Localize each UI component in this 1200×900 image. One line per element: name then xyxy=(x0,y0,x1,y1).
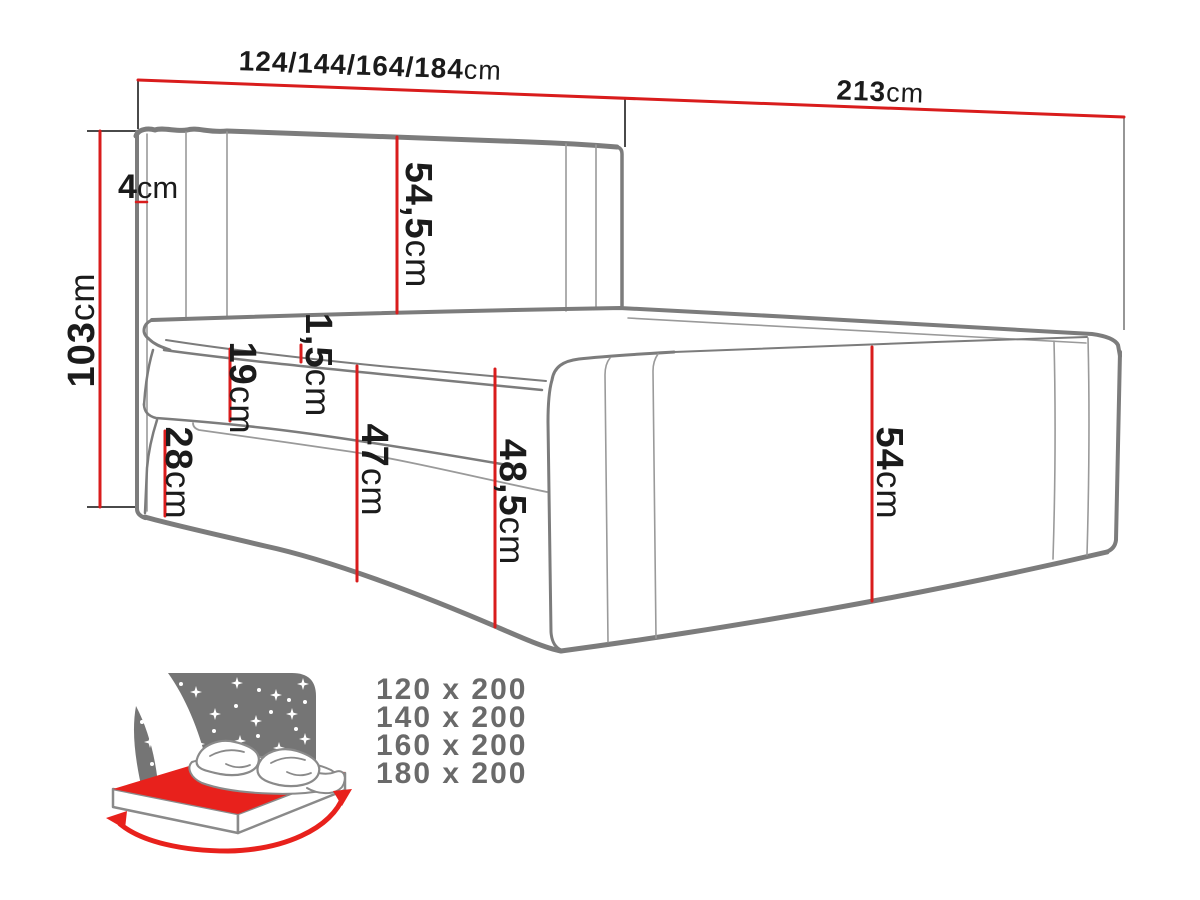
stars xyxy=(0,0,311,784)
pillar-seam-2 xyxy=(653,354,658,638)
base-bottom-edge-right xyxy=(561,552,1107,651)
pillar-left-edge xyxy=(548,380,561,650)
foot-corner-pillar xyxy=(548,352,674,650)
size-list: 120 x 200 140 x 200 160 x 200 180 x 200 xyxy=(376,673,527,790)
label-total-height: 103cm xyxy=(61,272,103,387)
arrow-head-right xyxy=(333,789,352,806)
corner-seam-2 xyxy=(1087,338,1089,555)
bed-drawing xyxy=(136,129,1120,651)
label-headboard-wing: 4cm xyxy=(118,168,178,206)
label-headboard-panel: 54,5cm xyxy=(397,162,439,289)
mattress-corner xyxy=(144,320,170,350)
corner-seam-1 xyxy=(1053,341,1055,559)
size-option-4: 180 x 200 xyxy=(376,757,527,790)
side-right-edge xyxy=(1106,352,1120,552)
dim-line-width-length xyxy=(138,80,1124,117)
label-side-front-height: 47cm xyxy=(353,424,395,517)
pillar-seam-1 xyxy=(605,358,610,642)
bed-base xyxy=(145,420,1107,651)
headboard-top-edge xyxy=(136,129,617,147)
label-side-right-height: 54cm xyxy=(868,427,910,520)
night-sky-icon xyxy=(0,0,316,796)
mattress-lip-bottom xyxy=(164,350,542,390)
headboard-right-edge xyxy=(617,147,622,306)
icon-pillow-left xyxy=(197,741,259,775)
arrow-head-left xyxy=(106,811,127,829)
label-width-options: 124/144/164/184cm xyxy=(238,45,502,86)
label-total-length: 213cm xyxy=(836,74,925,108)
mattress-band-left-edge xyxy=(144,350,153,405)
starry-night-bed-icon: 120 x 200 140 x 200 160 x 200 180 x 200 xyxy=(0,0,527,851)
label-side-foot-height: 48,5cm xyxy=(491,439,533,566)
diagram-canvas: 124/144/164/184cm 213cm 103cm 4cm 54,5cm… xyxy=(0,0,1200,900)
label-base-band: 28cm xyxy=(157,427,199,520)
label-mattress-band: 19cm xyxy=(221,342,263,435)
dimension-labels: 124/144/164/184cm 213cm 103cm 4cm 54,5cm… xyxy=(61,45,925,565)
label-mattress-lip: 1,5cm xyxy=(297,313,339,417)
side-top-edge xyxy=(674,337,1087,352)
bed-dimensions-diagram: 124/144/164/184cm 213cm 103cm 4cm 54,5cm… xyxy=(0,0,1200,900)
